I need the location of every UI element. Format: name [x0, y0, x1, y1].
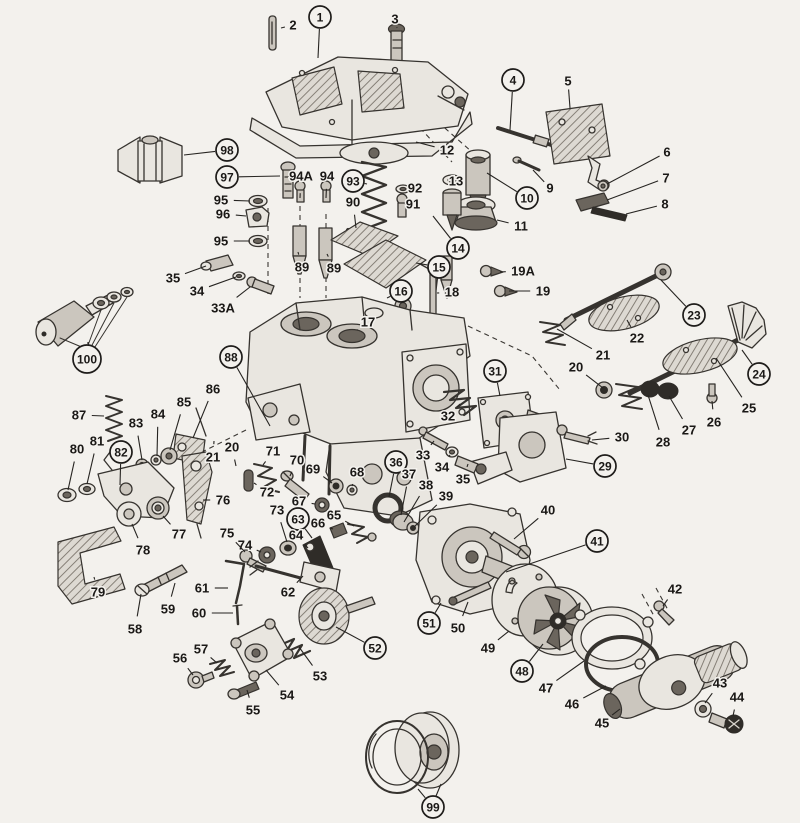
callout-54: 54	[266, 670, 295, 703]
callout-leader-line	[387, 296, 390, 298]
floats	[331, 222, 438, 290]
callout-number: 35	[456, 472, 470, 487]
callout-11: 11	[497, 219, 528, 234]
callout-leader-line	[237, 287, 250, 297]
callout-leader-line	[235, 460, 236, 467]
callout-leader-line	[418, 789, 425, 798]
callout-leader-line	[497, 220, 509, 223]
fast-idle-lever	[182, 452, 212, 538]
callout-number: 39	[439, 489, 453, 504]
callout-leader-line	[92, 416, 104, 417]
callout-number: 95	[214, 193, 228, 208]
callout-19: 19	[509, 284, 550, 299]
callout-number: 44	[730, 690, 745, 705]
callout-7: 7	[607, 171, 670, 200]
callout-55: 55	[246, 690, 260, 718]
callout-number: 7	[662, 171, 669, 186]
callout-77: 77	[163, 516, 186, 542]
callout-number: 35	[166, 271, 180, 286]
callout-49: 49	[481, 631, 509, 656]
callout-24-circled: 24	[742, 350, 770, 385]
callout-leader-line	[236, 215, 246, 216]
callout-number: 53	[313, 669, 327, 684]
callout-1-circled: 1	[309, 6, 331, 58]
callout-59: 59	[161, 583, 175, 617]
callout-number: 78	[136, 543, 150, 558]
callout-leader-line	[298, 252, 299, 255]
callout-number: 17	[361, 315, 375, 330]
callout-number: 51	[422, 616, 436, 630]
callout-number: 79	[91, 585, 105, 600]
callout-leader-line	[661, 280, 686, 306]
callout-number: 2	[289, 18, 296, 33]
callout-number: 62	[281, 585, 295, 600]
callout-33A: 33A	[211, 287, 250, 316]
callout-leader-line	[357, 330, 358, 331]
callout-number: 97	[220, 170, 234, 184]
callout-number: 60	[192, 606, 206, 621]
callout-4-circled: 4	[502, 69, 524, 130]
piston-and-cup	[455, 150, 497, 230]
callout-number: 38	[419, 478, 433, 493]
callout-20: 20	[225, 440, 239, 466]
callout-number: 65	[327, 508, 341, 523]
callout-leader-line	[533, 170, 544, 182]
callout-34: 34	[190, 277, 236, 299]
callout-leader-line	[120, 464, 121, 485]
callout-number: 96	[216, 207, 230, 222]
callout-6: 6	[607, 145, 671, 184]
callout-number: 13	[449, 174, 463, 189]
callout-18: 18	[437, 285, 459, 300]
callout-number: 82	[114, 445, 128, 459]
accelerator-pump-group	[188, 588, 375, 699]
callout-42: 42	[663, 582, 682, 606]
solenoid-valve	[36, 288, 133, 351]
callout-5: 5	[564, 74, 571, 108]
callout-leader-line	[742, 350, 752, 364]
callout-leader-line	[626, 206, 657, 214]
callout-number: 80	[70, 442, 84, 457]
callout-number: 11	[514, 219, 528, 234]
callout-number: 19A	[511, 264, 535, 279]
callout-91: 91	[406, 197, 420, 212]
callout-number: 45	[595, 716, 609, 731]
callout-number: 43	[713, 676, 727, 691]
callout-leader-line	[171, 583, 175, 597]
callout-leader-line	[163, 516, 171, 524]
callout-number: 94	[320, 169, 335, 184]
callout-number: 4	[510, 73, 517, 87]
callout-26: 26	[707, 401, 721, 430]
callout-number: 99	[426, 800, 440, 814]
callout-number: 22	[630, 331, 644, 346]
callout-73: 73	[270, 503, 287, 542]
callout-number: 93	[346, 174, 360, 188]
washers-and-bolt	[246, 162, 295, 247]
callout-leader-line	[193, 401, 208, 438]
callout-leader-line	[487, 173, 517, 192]
callout-number: 77	[172, 527, 186, 542]
callout-leader-line	[557, 329, 592, 349]
callout-number: 95	[214, 234, 228, 249]
callout-leader-line	[586, 375, 603, 388]
callout-8: 8	[626, 197, 669, 214]
callout-leader-line	[266, 670, 279, 685]
callout-number: 75	[220, 526, 234, 541]
callout-28: 28	[648, 395, 670, 450]
callout-number: 29	[598, 459, 612, 473]
callout-number: 40	[541, 503, 555, 518]
callout-number: 18	[445, 285, 459, 300]
callout-leader-line	[281, 522, 287, 542]
callout-number: 71	[266, 444, 280, 459]
callout-number: 26	[707, 415, 721, 430]
callout-number: 88	[224, 350, 238, 364]
callout-number: 10	[520, 191, 534, 205]
callout-number: 68	[350, 465, 364, 480]
callout-leader-line	[209, 277, 236, 287]
callout-48-circled: 48	[511, 644, 543, 682]
callout-number: 89	[327, 261, 341, 276]
callout-leader-line	[68, 462, 74, 491]
callout-leader-line	[94, 577, 95, 580]
callout-number: 27	[682, 423, 696, 438]
choke-shaft-and-plate	[540, 264, 671, 345]
diagram-svg: 1234567891011121314151617181919A20212223…	[0, 0, 800, 823]
callout-97-circled: 97	[216, 166, 280, 188]
callout-leader-line	[648, 395, 659, 430]
callout-31-circled: 31	[484, 360, 506, 396]
callout-number: 70	[290, 453, 304, 468]
callout-number: 81	[90, 434, 104, 449]
callout-99-circled: 99	[418, 789, 444, 818]
callout-number: 32	[441, 409, 455, 424]
callout-number: 56	[173, 651, 187, 666]
callout-leader-line	[498, 631, 509, 640]
callout-74: 74	[238, 538, 261, 553]
callout-leader-line	[669, 396, 683, 419]
callout-number: 34	[435, 460, 450, 475]
callout-number: 50	[451, 621, 465, 636]
callout-30: 30	[592, 430, 629, 445]
callout-27: 27	[669, 396, 696, 438]
callout-leader-line	[137, 594, 141, 616]
callout-number: 21	[206, 450, 220, 465]
callout-number: 15	[432, 260, 446, 274]
callout-number: 74	[238, 538, 253, 553]
callout-number: 63	[291, 512, 305, 526]
callout-100-circled: 100	[73, 342, 101, 373]
callout-number: 24	[752, 367, 766, 381]
callout-72: 72	[254, 483, 274, 500]
callout-58: 58	[128, 594, 142, 637]
callout-number: 73	[270, 503, 284, 518]
callout-98-circled: 98	[184, 139, 238, 161]
callout-number: 100	[77, 352, 97, 366]
callout-leader-line	[254, 483, 257, 485]
callout-leader-line	[583, 686, 606, 698]
callout-93-circled: 93	[342, 170, 367, 192]
callout-13: 13	[449, 174, 463, 189]
callout-96: 96	[216, 207, 246, 222]
callout-number: 12	[440, 143, 454, 158]
callout-number: 37	[402, 467, 416, 482]
callout-number: 1	[317, 10, 324, 24]
callout-number: 58	[128, 622, 142, 637]
callout-51-circled: 51	[418, 603, 441, 634]
callout-57: 57	[194, 642, 217, 663]
callout-number: 6	[663, 145, 670, 160]
callout-60: 60	[192, 606, 233, 621]
callout-leader-line	[239, 176, 280, 177]
callout-number: 9	[546, 181, 553, 196]
callout-number: 54	[280, 688, 295, 703]
callout-number: 57	[194, 642, 208, 657]
callout-leader-line	[138, 436, 142, 460]
callout-number: 83	[129, 416, 143, 431]
callout-80: 80	[68, 442, 84, 490]
callout-number: 5	[564, 74, 571, 89]
callout-leader-line	[299, 647, 313, 666]
callout-number: 67	[292, 494, 306, 509]
callout-number: 52	[368, 641, 382, 655]
callout-number: 20	[569, 360, 583, 375]
callout-65: 65	[327, 508, 354, 526]
callout-number: 92	[408, 181, 422, 196]
callout-44: 44	[730, 690, 745, 716]
callout-leader-line	[281, 27, 285, 28]
callout-leader-line	[318, 29, 319, 58]
callout-20: 20	[569, 360, 603, 388]
callout-number: 94A	[289, 169, 313, 184]
callout-2: 2	[281, 18, 297, 33]
callout-number: 14	[451, 241, 465, 255]
callout-leader-line	[592, 438, 609, 440]
callout-95: 95	[214, 234, 250, 249]
callout-number: 34	[190, 284, 205, 299]
callout-number: 23	[687, 308, 701, 322]
callout-leader-line	[263, 461, 266, 465]
callout-62: 62	[281, 576, 303, 600]
callout-67: 67	[292, 494, 315, 509]
callout-number: 66	[311, 516, 325, 531]
callout-number: 76	[216, 493, 230, 508]
callout-number: 25	[742, 401, 756, 416]
callout-number: 55	[246, 703, 260, 718]
callout-number: 20	[225, 440, 239, 455]
callout-number: 19	[536, 284, 550, 299]
callout-number: 61	[195, 581, 209, 596]
callout-number: 8	[661, 197, 668, 212]
callout-leader-line	[566, 459, 593, 464]
callout-number: 30	[615, 430, 629, 445]
callout-84: 84	[151, 407, 166, 456]
callout-95: 95	[214, 193, 250, 208]
callout-29-circled: 29	[566, 455, 616, 477]
callout-number: 89	[295, 260, 309, 275]
callout-leader-line	[705, 693, 712, 703]
callout-leader-line	[132, 524, 138, 538]
callout-number: 33	[416, 448, 430, 463]
callout-71: 71	[263, 444, 280, 465]
callout-leader-line	[449, 455, 450, 456]
callout-leader-line	[184, 151, 215, 155]
callout-53: 53	[299, 647, 327, 684]
callout-number: 90	[346, 195, 360, 210]
callout-number: 86	[206, 382, 220, 397]
callout-61: 61	[195, 581, 228, 596]
callout-number: 91	[406, 197, 420, 212]
callout-number: 72	[260, 485, 274, 500]
callout-leader-line	[352, 484, 353, 486]
callout-92: 92	[408, 181, 422, 196]
callout-number: 85	[177, 395, 191, 410]
callout-number: 64	[289, 528, 304, 543]
callout-leader-line	[556, 661, 584, 681]
callout-number: 41	[590, 534, 604, 548]
callout-number: 33A	[211, 301, 235, 316]
callout-number: 98	[220, 143, 234, 157]
callout-number: 84	[151, 407, 166, 422]
callout-number: 47	[539, 681, 553, 696]
callout-87: 87	[72, 408, 104, 423]
callout-46: 46	[565, 686, 606, 712]
callout-number: 46	[565, 697, 579, 712]
callout-number: 69	[306, 462, 320, 477]
callout-leader-line	[312, 503, 315, 504]
callout-number: 49	[481, 641, 495, 656]
main-body	[246, 297, 470, 516]
callout-leader-line	[607, 156, 660, 184]
air-horn	[366, 712, 459, 796]
callout-number: 3	[391, 12, 398, 27]
callout-number: 48	[515, 664, 529, 678]
callout-leader-line	[87, 454, 94, 485]
callout-34: 34	[435, 455, 450, 475]
callout-number: 31	[488, 364, 502, 378]
callout-leader-line	[365, 184, 367, 185]
exploded-view-illustration	[36, 16, 766, 796]
callout-number: 42	[668, 582, 682, 597]
callout-19A: 19A	[500, 264, 536, 279]
callout-47: 47	[539, 661, 584, 696]
callout-leader-line	[497, 383, 500, 396]
callout-78: 78	[132, 524, 150, 558]
callout-3: 3	[391, 12, 398, 28]
exploded-parts-diagram: 1234567891011121314151617181919A20212223…	[0, 0, 800, 823]
callout-number: 21	[596, 348, 610, 363]
callout-number: 59	[161, 602, 175, 617]
idle-mixture-screw	[135, 565, 187, 596]
callout-56: 56	[173, 651, 193, 675]
idle-jet-set	[201, 255, 274, 294]
callout-number: 16	[394, 284, 408, 298]
callout-leader-line	[569, 89, 570, 108]
callout-leader-line	[510, 92, 512, 130]
callout-leader-line	[607, 181, 658, 200]
callout-leader-line	[716, 358, 742, 397]
callout-number: 28	[656, 435, 670, 450]
callout-leader-line	[234, 200, 250, 201]
callout-leader-line	[157, 427, 158, 456]
part-98-spool	[118, 136, 182, 183]
callout-number: 87	[72, 408, 86, 423]
callout-23-circled: 23	[661, 280, 705, 326]
